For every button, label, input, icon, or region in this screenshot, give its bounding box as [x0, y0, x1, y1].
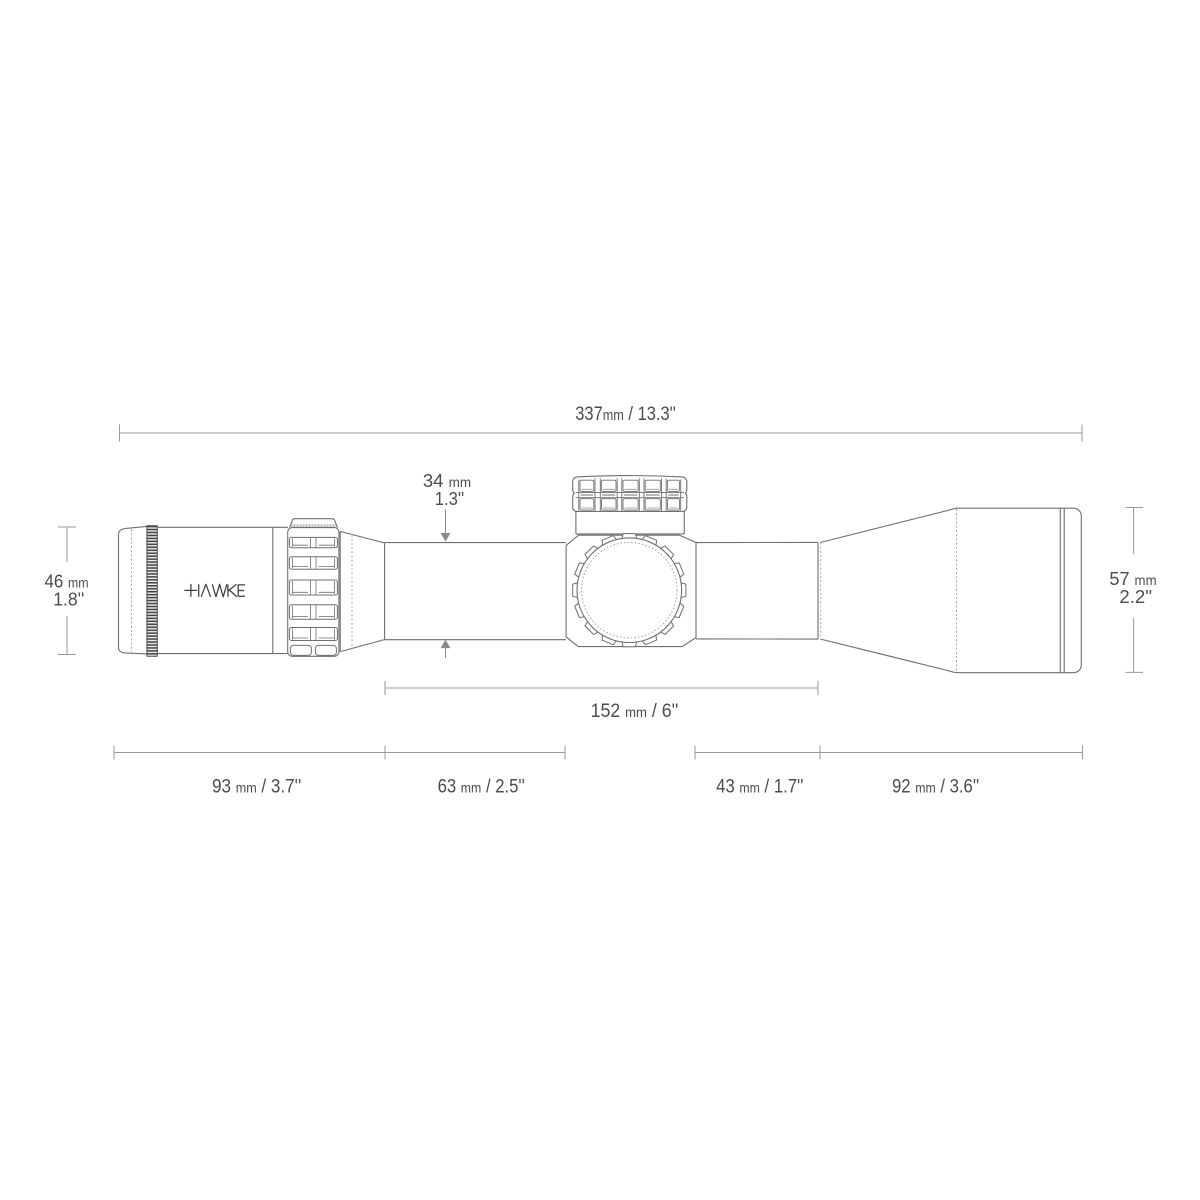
svg-text:1.8'': 1.8''	[53, 589, 84, 610]
svg-text:63 mm / 2.5'': 63 mm / 2.5''	[438, 776, 525, 797]
svg-text:2.2'': 2.2''	[1119, 586, 1152, 607]
svg-text:152 mm / 6'': 152 mm / 6''	[591, 699, 679, 721]
svg-text:43 mm / 1.7'': 43 mm / 1.7''	[716, 776, 803, 797]
svg-text:93 mm / 3.7'': 93 mm / 3.7''	[212, 776, 301, 797]
svg-text:1.3'': 1.3''	[435, 488, 464, 509]
svg-text:337mm / 13.3'': 337mm / 13.3''	[575, 403, 676, 425]
svg-text:92 mm / 3.6'': 92 mm / 3.6''	[892, 776, 979, 797]
